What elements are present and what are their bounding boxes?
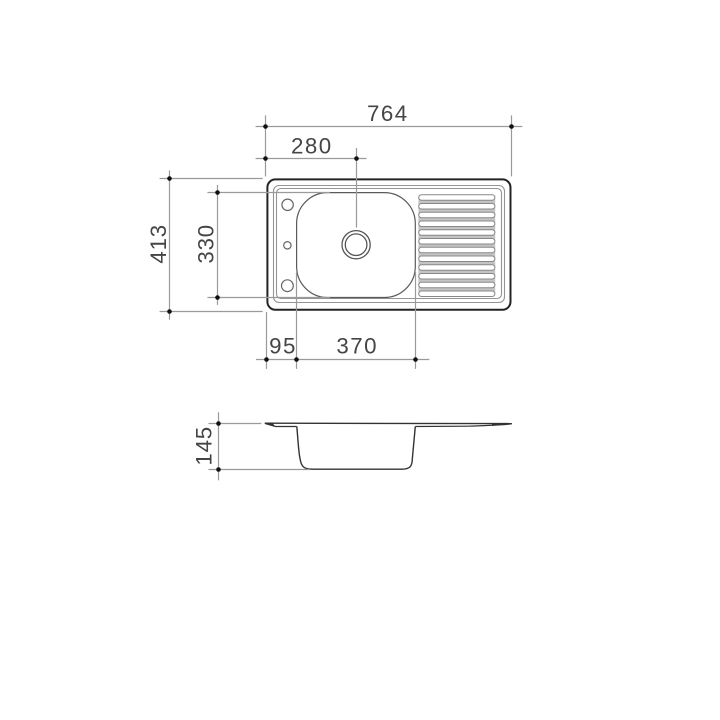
svg-text:370: 370 [336,334,378,359]
svg-text:764: 764 [367,101,409,126]
svg-text:413: 413 [146,224,171,264]
svg-text:95: 95 [269,334,297,359]
svg-text:280: 280 [291,134,333,159]
svg-text:145: 145 [192,426,217,466]
svg-text:330: 330 [194,224,219,264]
